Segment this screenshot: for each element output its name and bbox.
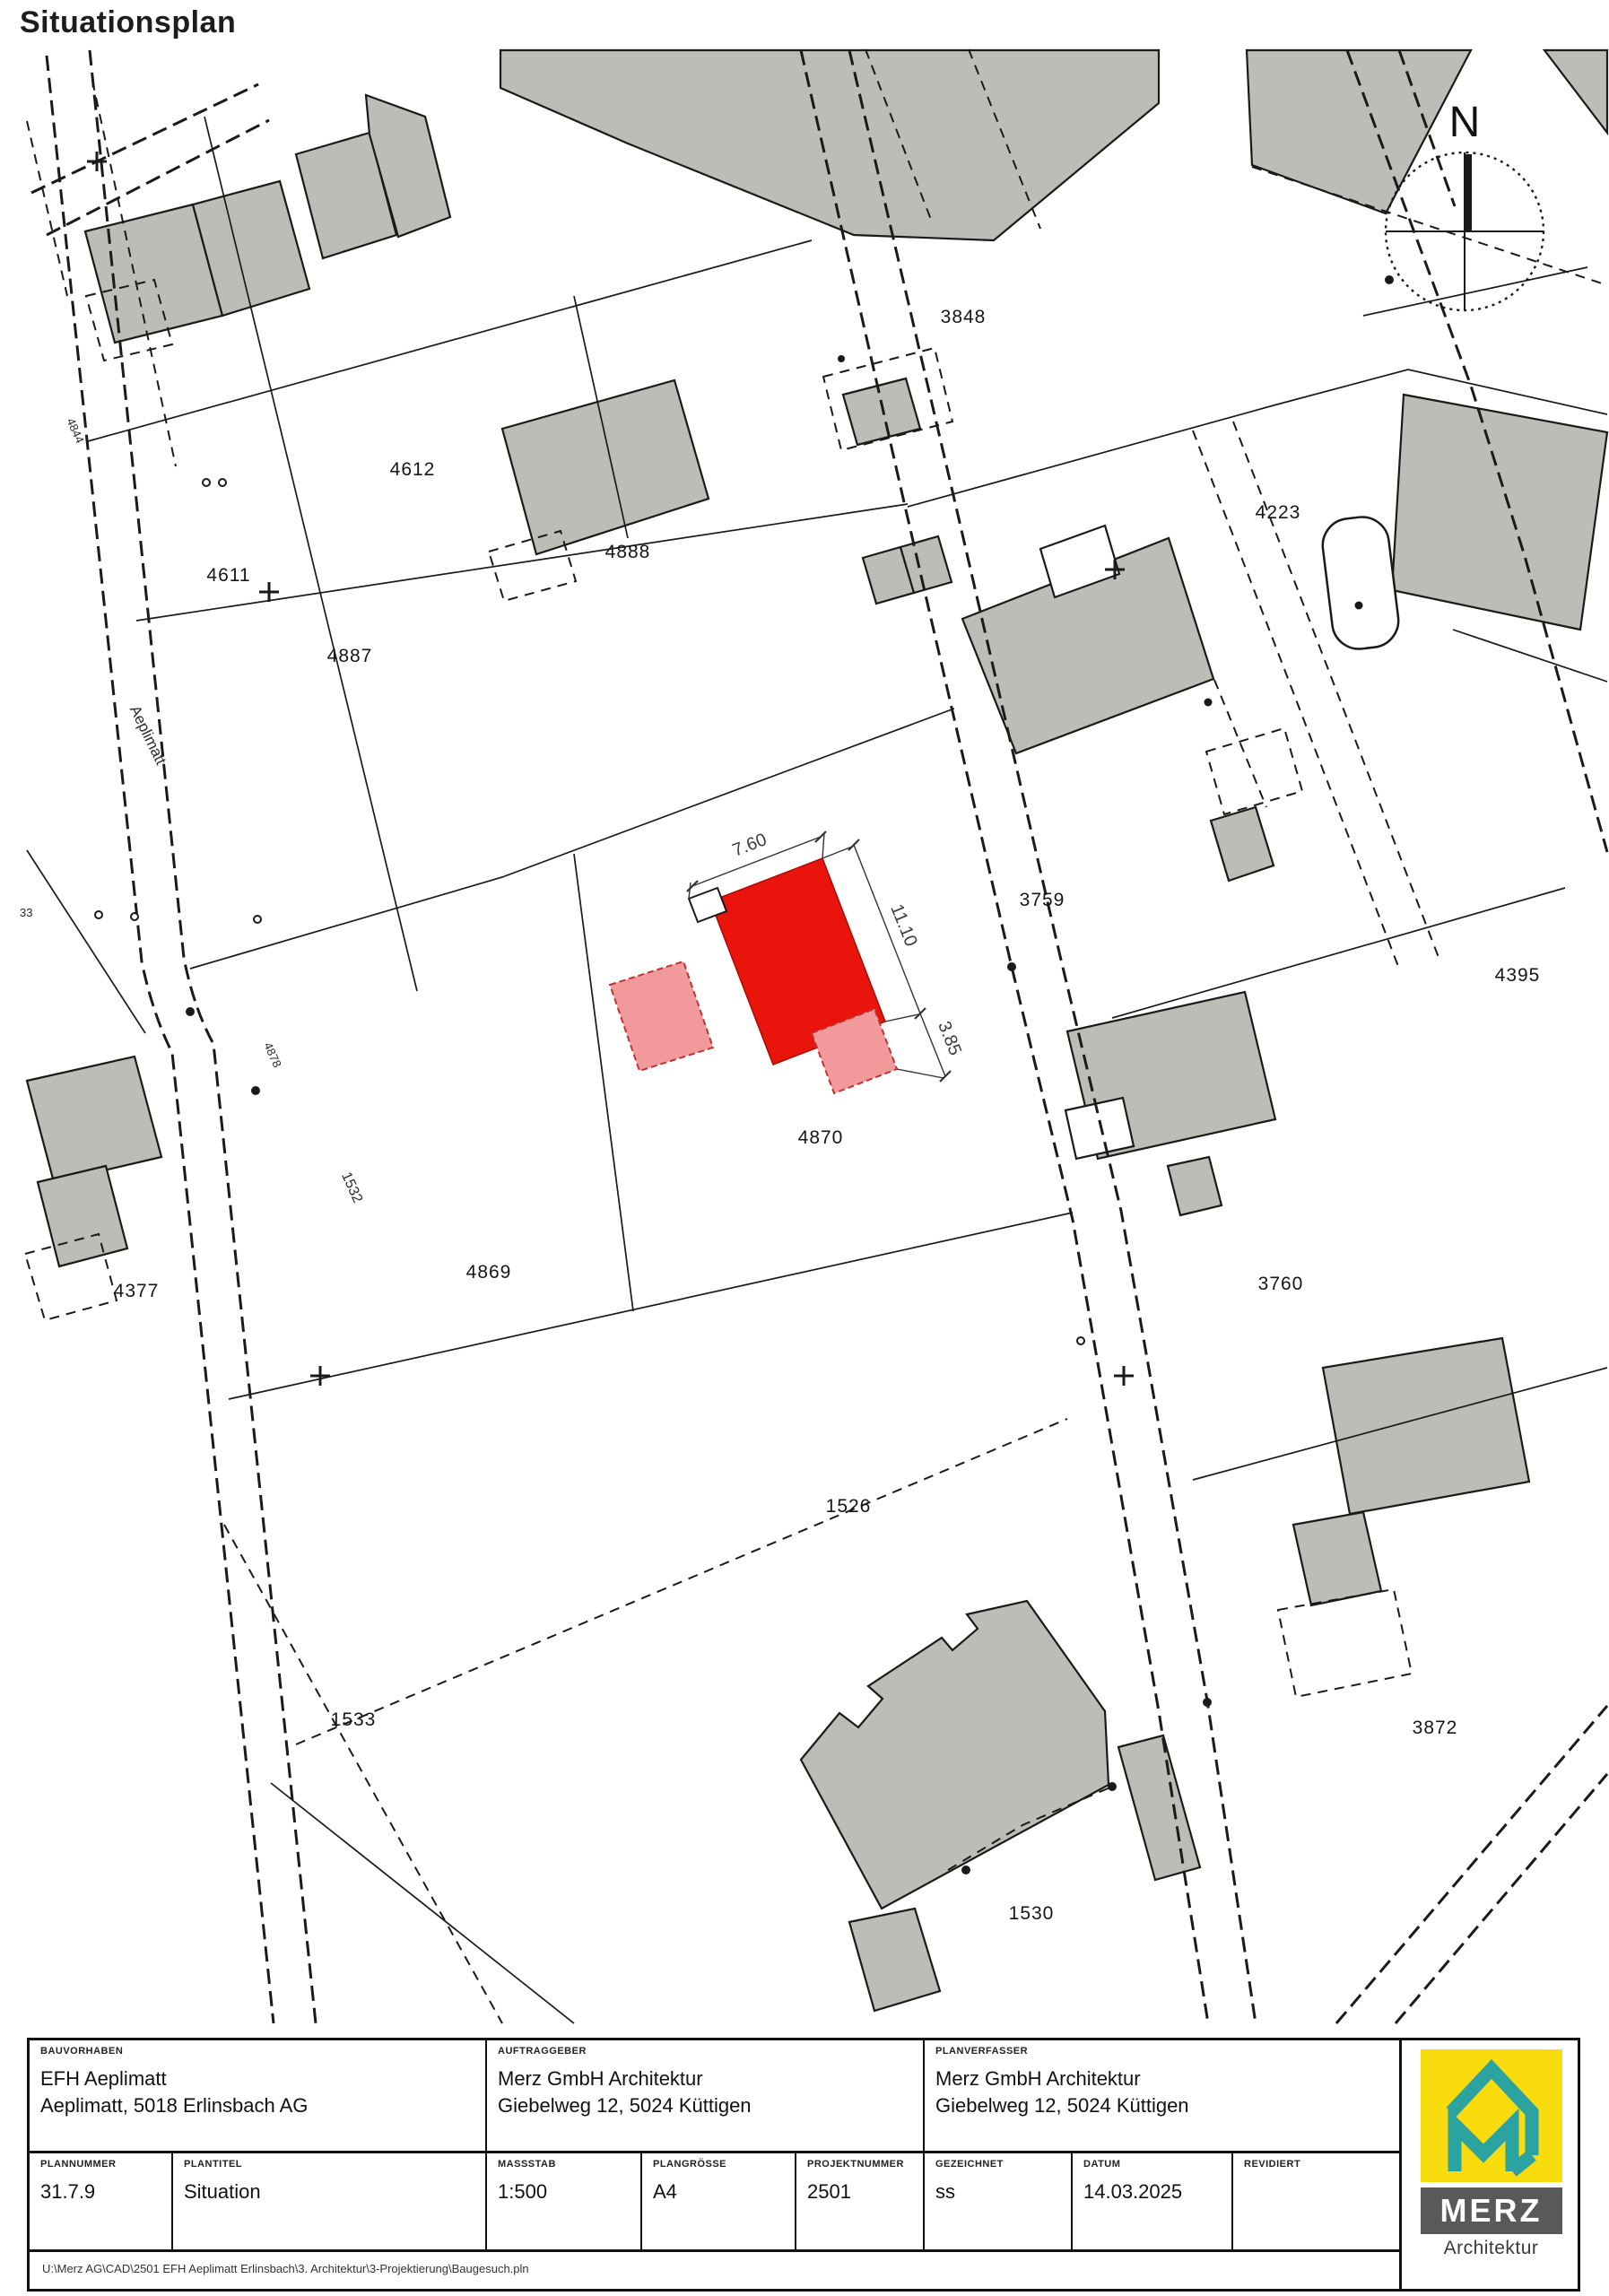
field-label: PLANGRÖSSE <box>653 2159 786 2170</box>
parcel-label: 1533 <box>331 1709 377 1730</box>
parcel-label: 4612 <box>390 459 436 480</box>
auftraggeber-line2: Giebelweg 12, 5024 Küttigen <box>498 2092 914 2119</box>
field-projektnummer: PROJEKTNUMMER 2501 <box>796 2151 925 2249</box>
file-path-row: U:\Merz AG\CAD\2501 EFH Aeplimatt Erlins… <box>30 2249 1399 2292</box>
parcel-label: 4611 <box>206 565 250 586</box>
company-logo: MERZ Architektur <box>1399 2040 1580 2289</box>
parcel-label: 3759 <box>1020 890 1065 910</box>
field-plangroesse: PLANGRÖSSE A4 <box>642 2151 796 2249</box>
auftraggeber-line1: Merz GmbH Architektur <box>498 2066 914 2092</box>
annex-west <box>610 961 713 1071</box>
field-revidiert: REVIDIERT <box>1233 2151 1399 2249</box>
projektnummer-value: 2501 <box>807 2179 914 2205</box>
field-label: AUFTRAGGEBER <box>498 2046 914 2057</box>
dimension-width: 7.60 <box>730 830 770 860</box>
field-planverfasser: PLANVERFASSER Merz GmbH Architektur Gieb… <box>925 2040 1399 2151</box>
planverfasser-line1: Merz GmbH Architektur <box>935 2066 1390 2092</box>
field-label: GEZEICHNET <box>935 2159 1062 2170</box>
north-label: N <box>1449 99 1481 146</box>
parcel-boundaries <box>27 117 1607 2023</box>
field-label: REVIDIERT <box>1244 2159 1390 2170</box>
logo-subtitle: Architektur <box>1402 2238 1580 2259</box>
merz-logo-icon <box>1421 2049 1562 2182</box>
parcel-label: 4888 <box>605 542 651 562</box>
parcel-label: 4870 <box>798 1127 844 1148</box>
bauvorhaben-line2: Aeplimatt, 5018 Erlinsbach AG <box>40 2092 476 2119</box>
field-label: BAUVORHABEN <box>40 2046 476 2057</box>
massstab-value: 1:500 <box>498 2179 631 2205</box>
gezeichnet-value: ss <box>935 2179 1062 2205</box>
file-path: U:\Merz AG\CAD\2501 EFH Aeplimatt Erlins… <box>42 2262 529 2275</box>
road-parcel-label: 4844 <box>64 416 86 446</box>
logo-brand-text: MERZ <box>1421 2187 1562 2234</box>
road-parcel-label: 1532 <box>338 1170 365 1205</box>
parcel-label: 4223 <box>1256 502 1301 523</box>
parcel-label: 4887 <box>327 646 373 666</box>
new-building-group <box>610 858 897 1093</box>
plantitel-value: Situation <box>184 2179 476 2205</box>
field-datum: DATUM 14.03.2025 <box>1073 2151 1233 2249</box>
dimension-annex: 3.85 <box>934 1019 965 1058</box>
title-block: BAUVORHABEN EFH Aeplimatt Aeplimatt, 501… <box>27 2038 1580 2292</box>
page-title: Situationsplan <box>20 5 236 40</box>
site-plan-drawing: 7.60 11.10 3.85 3848 4612 4611 4888 4223… <box>0 0 1609 2296</box>
field-plannummer: PLANNUMMER 31.7.9 <box>30 2151 173 2249</box>
field-label: PLANNUMMER <box>40 2159 162 2170</box>
parcel-label: 3760 <box>1258 1274 1304 1294</box>
bauvorhaben-line1: EFH Aeplimatt <box>40 2066 476 2092</box>
parcel-label: 1526 <box>826 1496 872 1517</box>
field-label: PLANTITEL <box>184 2159 476 2170</box>
parcel-label: 4377 <box>114 1281 160 1301</box>
plangroesse-value: A4 <box>653 2179 786 2205</box>
street-name-label: Aeplimatt <box>126 703 170 768</box>
datum-value: 14.03.2025 <box>1083 2179 1222 2205</box>
plannummer-value: 31.7.9 <box>40 2179 162 2205</box>
field-label: DATUM <box>1083 2159 1222 2170</box>
planverfasser-line2: Giebelweg 12, 5024 Küttigen <box>935 2092 1390 2119</box>
parcel-label: 3848 <box>941 307 987 327</box>
parcel-label: 3872 <box>1413 1718 1458 1738</box>
field-bauvorhaben: BAUVORHABEN EFH Aeplimatt Aeplimatt, 501… <box>30 2040 487 2151</box>
survey-crosses <box>87 152 1134 1386</box>
field-label: PROJEKTNUMMER <box>807 2159 914 2170</box>
parcel-label: 1530 <box>1009 1903 1055 1924</box>
field-massstab: MASSSTAB 1:500 <box>487 2151 642 2249</box>
field-label: PLANVERFASSER <box>935 2046 1390 2057</box>
round-building <box>1319 514 1401 652</box>
field-label: MASSSTAB <box>498 2159 631 2170</box>
parcel-label: 4395 <box>1495 965 1541 986</box>
field-gezeichnet: GEZEICHNET ss <box>925 2151 1073 2249</box>
plan-sheet: Situationsplan <box>0 0 1609 2296</box>
field-auftraggeber: AUFTRAGGEBER Merz GmbH Architektur Giebe… <box>487 2040 925 2151</box>
edge-parcel-label: 33 <box>20 906 32 919</box>
parcel-label: 4869 <box>466 1262 512 1283</box>
road-parcel-label: 4878 <box>261 1040 283 1070</box>
field-plantitel: PLANTITEL Situation <box>173 2151 487 2249</box>
